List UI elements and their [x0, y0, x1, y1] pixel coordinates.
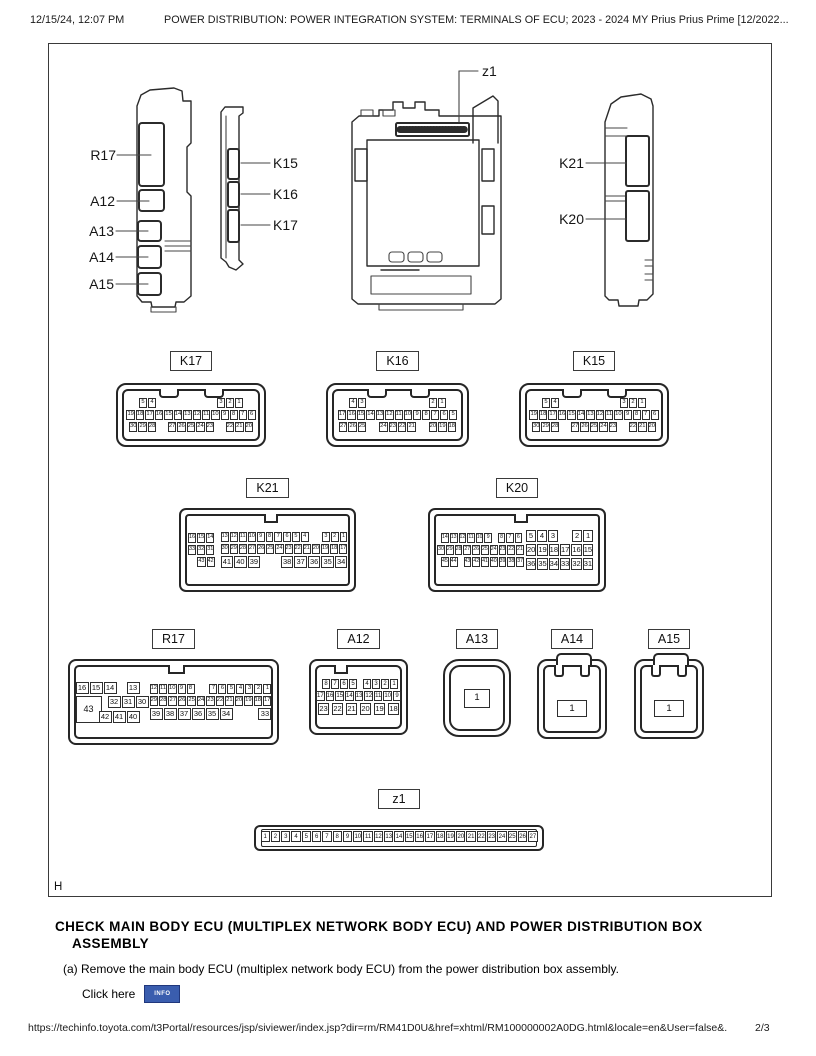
pin-K21-27: 27	[248, 544, 256, 554]
pin-K20-25: 25	[481, 545, 489, 555]
header-document-title: POWER DISTRIBUTION: POWER INTEGRATION SY…	[164, 14, 794, 26]
pin-K20-4: 4	[537, 530, 547, 542]
pin-K20-6: 6	[515, 533, 522, 543]
pin-K20-41: 41	[481, 557, 489, 567]
pin-K15-16: 16	[558, 410, 566, 420]
pin-R17-5: 5	[227, 684, 235, 694]
pin-K21-9: 9	[257, 532, 265, 542]
pin-K15-22: 22	[629, 422, 637, 432]
pin-K16-5: 5	[449, 410, 457, 420]
pin-K21-36: 36	[308, 556, 321, 568]
pin-z1-1: 1	[261, 831, 270, 842]
pin-A12-21: 21	[346, 703, 357, 715]
pin-K15-9: 9	[624, 410, 632, 420]
callout-a12: A12	[90, 193, 115, 209]
connector-shell-K20: 1413121110987630292827262524232221454443…	[428, 508, 606, 592]
connector-label-A15: A15	[648, 629, 690, 649]
pin-K16-14: 14	[366, 410, 374, 420]
pin-K15-1: 1	[638, 398, 646, 408]
pin-K20-30: 30	[437, 545, 445, 555]
pin-K15-12: 12	[596, 410, 604, 420]
pin-K16-20: 20	[429, 422, 437, 432]
pin-K21-38: 38	[281, 556, 294, 568]
pin-K21-7: 7	[274, 532, 282, 542]
pin-R17-29: 29	[150, 696, 158, 706]
pin-K21-2: 2	[331, 532, 339, 542]
pin-K16-3: 3	[358, 398, 366, 408]
pin-z1-24: 24	[497, 831, 506, 842]
pin-A12-2: 2	[381, 679, 389, 689]
pin-K16-22: 22	[398, 422, 406, 432]
click-here-label: Click here	[82, 987, 135, 1001]
section-heading-line1: CHECK MAIN BODY ECU (MULTIPLEX NETWORK B…	[55, 918, 795, 935]
pin-K17-3: 3	[217, 398, 225, 408]
pin-K21-16: 16	[188, 533, 196, 543]
ecu-right-side-view: K21 K20	[559, 94, 653, 306]
pin-K17-13: 13	[183, 410, 191, 420]
pin-K15-23: 23	[609, 422, 617, 432]
callout-k16: K16	[273, 186, 298, 202]
pin-K17-29: 29	[138, 422, 146, 432]
pin-A12-14: 14	[345, 691, 354, 701]
pin-K21-1: 1	[340, 532, 348, 542]
pin-K20-9: 9	[484, 533, 491, 543]
pin-K17-10: 10	[211, 410, 219, 420]
connector-label-z1: z1	[378, 789, 420, 809]
pin-R17-18: 18	[254, 696, 262, 706]
pin-K20-15: 15	[583, 544, 593, 556]
pin-R17-4: 4	[236, 684, 244, 694]
pin-K20-3: 3	[548, 530, 558, 542]
pin-K15-17: 17	[548, 410, 556, 420]
pin-z1-26: 26	[518, 831, 527, 842]
pin-z1-18: 18	[436, 831, 445, 842]
callout-r17: R17	[90, 147, 116, 163]
connector-shell-K16: 4321171615141312111098765272625242322212…	[326, 383, 469, 447]
pin-K15-19: 19	[529, 410, 537, 420]
connector-shell-A13: 1	[443, 659, 511, 737]
connector-label-K16: K16	[376, 351, 418, 371]
connector-shell-R17: 1615141343323130424140121110987654321292…	[68, 659, 279, 745]
pin-K20-42: 42	[472, 557, 480, 567]
connector-label-A12: A12	[337, 629, 379, 649]
pin-K15-28: 28	[551, 422, 559, 432]
pin-K17-20: 20	[245, 422, 253, 432]
pin-R17-19: 19	[244, 696, 252, 706]
callout-a14: A14	[89, 249, 114, 265]
callout-k17: K17	[273, 217, 298, 233]
pin-K15-6: 6	[651, 410, 659, 420]
pin-K20-10: 10	[476, 533, 484, 543]
callout-a13: A13	[89, 223, 114, 239]
pin-K17-14: 14	[174, 410, 182, 420]
pin-K16-9: 9	[413, 410, 421, 420]
connector-shell-K17: 5432119181716151413121110987630292827262…	[116, 383, 266, 447]
pin-A12-11: 11	[374, 691, 382, 701]
pin-K21-18: 18	[330, 544, 338, 554]
pin-A14-1: 1	[557, 700, 587, 717]
pin-R17-23: 23	[206, 696, 214, 706]
pin-K20-16: 16	[571, 544, 581, 556]
pin-K15-7: 7	[642, 410, 650, 420]
connector-label-K15: K15	[573, 351, 615, 371]
pin-K17-25: 25	[187, 422, 195, 432]
pin-K20-45: 45	[441, 557, 449, 567]
pin-K20-21: 21	[516, 545, 524, 555]
pin-z1-19: 19	[446, 831, 455, 842]
pin-K20-8: 8	[498, 533, 505, 543]
pin-K16-10: 10	[404, 410, 412, 420]
pin-K15-27: 27	[571, 422, 579, 432]
pin-K20-44: 44	[450, 557, 458, 567]
pin-z1-23: 23	[487, 831, 496, 842]
pin-K16-1: 1	[438, 398, 446, 408]
pin-K20-12: 12	[459, 533, 467, 543]
pin-K20-39: 39	[499, 557, 507, 567]
pin-z1-17: 17	[425, 831, 434, 842]
pin-A12-5: 5	[349, 679, 357, 689]
pin-z1-10: 10	[353, 831, 362, 842]
pin-K15-30: 30	[532, 422, 540, 432]
pin-K17-27: 27	[168, 422, 176, 432]
pin-A12-6: 6	[340, 679, 348, 689]
pin-A12-4: 4	[363, 679, 371, 689]
pin-K17-11: 11	[202, 410, 210, 420]
pin-K21-6: 6	[283, 532, 291, 542]
pin-K20-26: 26	[472, 545, 480, 555]
pin-R17-14: 14	[104, 682, 117, 694]
pin-R17-38: 38	[164, 708, 177, 720]
pin-K17-26: 26	[177, 422, 185, 432]
pin-R17-32: 32	[108, 696, 121, 708]
terminals-figure: R17 A12 A13 A14 A15 K15 K16 K17	[48, 43, 772, 897]
pin-A12-17: 17	[316, 691, 325, 701]
pin-A12-22: 22	[332, 703, 343, 715]
pin-K17-12: 12	[193, 410, 201, 420]
pin-K17-2: 2	[226, 398, 234, 408]
pin-R17-16: 16	[76, 682, 89, 694]
pin-K17-6: 6	[248, 410, 256, 420]
pin-K20-36: 36	[526, 558, 536, 570]
pin-K17-15: 15	[164, 410, 172, 420]
pin-A12-19: 19	[374, 703, 385, 715]
pin-K15-4: 4	[551, 398, 559, 408]
connector-shell-K21: 1615143332314342131211109876543213029282…	[179, 508, 356, 592]
pin-K20-32: 32	[571, 558, 581, 570]
pin-R17-6: 6	[218, 684, 226, 694]
pin-K16-24: 24	[379, 422, 387, 432]
pin-K15-21: 21	[638, 422, 646, 432]
pin-R17-42: 42	[99, 711, 112, 723]
pin-K21-42: 42	[207, 557, 215, 567]
pin-R17-1: 1	[263, 684, 271, 694]
pin-K21-20: 20	[312, 544, 320, 554]
pin-K17-1: 1	[235, 398, 243, 408]
pin-A12-12: 12	[364, 691, 373, 701]
pin-A12-20: 20	[360, 703, 371, 715]
click-here-row: Click here INFO	[82, 985, 180, 1003]
connector-shell-z1: 1234567891011121314151617181920212223242…	[254, 825, 544, 851]
pin-K17-22: 22	[226, 422, 234, 432]
pin-z1-20: 20	[456, 831, 465, 842]
pin-R17-7: 7	[209, 684, 217, 694]
connector-label-R17: R17	[152, 629, 195, 649]
pin-A12-23: 23	[318, 703, 329, 715]
pin-A12-15: 15	[335, 691, 344, 701]
pin-z1-16: 16	[415, 831, 424, 842]
pin-K17-24: 24	[196, 422, 204, 432]
pin-K17-28: 28	[148, 422, 156, 432]
pin-K20-29: 29	[446, 545, 454, 555]
pin-K15-18: 18	[539, 410, 547, 420]
connector-shell-A12: 8765432117161514131211109232221201918	[309, 659, 408, 735]
pin-K15-13: 13	[586, 410, 594, 420]
pin-K17-21: 21	[235, 422, 243, 432]
pin-R17-15: 15	[90, 682, 103, 694]
pin-K16-8: 8	[422, 410, 430, 420]
pin-R17-34: 34	[220, 708, 233, 720]
pin-K20-5: 5	[526, 530, 536, 542]
pin-A12-7: 7	[331, 679, 339, 689]
pin-K15-29: 29	[541, 422, 549, 432]
pin-A12-16: 16	[326, 691, 335, 701]
connector-label-K17: K17	[170, 351, 212, 371]
info-button[interactable]: INFO	[144, 985, 180, 1003]
pin-K17-30: 30	[129, 422, 137, 432]
pin-K20-18: 18	[549, 544, 559, 556]
pin-R17-22: 22	[216, 696, 224, 706]
pin-K16-27: 27	[339, 422, 347, 432]
pin-K16-2: 2	[429, 398, 437, 408]
pin-K21-8: 8	[266, 532, 274, 542]
pin-R17-12: 12	[150, 684, 158, 694]
pin-z1-4: 4	[291, 831, 300, 842]
pin-R17-21: 21	[225, 696, 233, 706]
pin-K17-16: 16	[155, 410, 163, 420]
connector-shell-A15: 1	[634, 659, 704, 739]
connector-label-K21: K21	[246, 478, 288, 498]
pin-K16-23: 23	[389, 422, 397, 432]
pin-K16-4: 4	[349, 398, 357, 408]
pin-K21-3: 3	[322, 532, 330, 542]
pin-K16-13: 13	[376, 410, 384, 420]
pin-z1-7: 7	[322, 831, 331, 842]
pin-K21-12: 12	[230, 532, 238, 542]
footer-page-number: 2/3	[755, 1022, 770, 1034]
connector-diagram-k21: K211615143332314342131211109876543213029…	[179, 478, 356, 592]
pin-z1-9: 9	[343, 831, 352, 842]
pin-K16-26: 26	[348, 422, 356, 432]
pin-K17-5: 5	[139, 398, 147, 408]
pin-R17-20: 20	[235, 696, 243, 706]
pin-A12-8: 8	[322, 679, 330, 689]
connector-label-A14: A14	[551, 629, 593, 649]
pin-K20-38: 38	[507, 557, 515, 567]
pin-R17-36: 36	[192, 708, 205, 720]
pin-R17-39: 39	[150, 708, 163, 720]
callout-z1: z1	[482, 63, 497, 79]
pin-A15-1: 1	[654, 700, 684, 717]
pin-R17-31: 31	[122, 696, 135, 708]
pin-K15-2: 2	[629, 398, 637, 408]
pin-z1-11: 11	[363, 831, 372, 842]
ecu-left-side-view: R17 A12 A13 A14 A15	[89, 88, 191, 312]
pin-K20-1: 1	[583, 530, 593, 542]
pin-K21-35: 35	[321, 556, 334, 568]
step-a-text: (a) Remove the main body ECU (multiplex …	[63, 962, 783, 976]
callout-a15: A15	[89, 276, 114, 292]
pin-K20-22: 22	[507, 545, 515, 555]
pin-K15-26: 26	[580, 422, 588, 432]
pin-A12-18: 18	[388, 703, 399, 715]
pin-K20-28: 28	[455, 545, 463, 555]
pin-R17-37: 37	[178, 708, 191, 720]
pin-K21-11: 11	[239, 532, 247, 542]
pin-K16-16: 16	[347, 410, 355, 420]
pin-K20-11: 11	[467, 533, 474, 543]
pin-A12-10: 10	[383, 691, 392, 701]
pin-z1-13: 13	[384, 831, 393, 842]
pin-R17-13: 13	[127, 682, 140, 694]
pin-K20-23: 23	[499, 545, 507, 555]
pin-K20-14: 14	[441, 533, 449, 543]
pin-K21-33: 33	[188, 545, 196, 555]
pin-K21-41: 41	[221, 556, 234, 568]
pin-K21-22: 22	[294, 544, 302, 554]
pin-A12-3: 3	[372, 679, 380, 689]
pin-A12-13: 13	[355, 691, 364, 701]
pin-K16-17: 17	[338, 410, 346, 420]
pin-z1-2: 2	[271, 831, 280, 842]
pin-K21-24: 24	[275, 544, 283, 554]
connector-label-K20: K20	[496, 478, 538, 498]
pin-K21-13: 13	[221, 532, 229, 542]
pin-K16-25: 25	[358, 422, 366, 432]
pin-z1-27: 27	[528, 831, 537, 842]
pin-K16-15: 15	[357, 410, 365, 420]
connector-diagram-k20: K201413121110987630292827262524232221454…	[428, 478, 606, 592]
pin-K20-7: 7	[506, 533, 513, 543]
pin-z1-22: 22	[477, 831, 486, 842]
connector-shell-K15: 5432119181716151413121110987630292827262…	[519, 383, 669, 447]
connector-diagram-k15: K155432119181716151413121110987630292827…	[519, 351, 669, 447]
pin-K16-21: 21	[407, 422, 415, 432]
pin-K21-28: 28	[239, 544, 247, 554]
pin-K20-27: 27	[463, 545, 471, 555]
pin-z1-25: 25	[508, 831, 517, 842]
section-heading: CHECK MAIN BODY ECU (MULTIPLEX NETWORK B…	[55, 918, 795, 953]
ecu-views-drawing: R17 A12 A13 A14 A15 K15 K16 K17	[49, 44, 771, 344]
pin-z1-3: 3	[281, 831, 290, 842]
pin-K20-33: 33	[560, 558, 570, 570]
pin-R17-10: 10	[168, 684, 176, 694]
pin-K15-10: 10	[614, 410, 622, 420]
pin-R17-8: 8	[187, 684, 195, 694]
pin-K21-37: 37	[294, 556, 307, 568]
pin-K15-14: 14	[577, 410, 585, 420]
pin-K20-40: 40	[490, 557, 498, 567]
pin-K21-4: 4	[301, 532, 309, 542]
ecu-front-view: z1	[352, 63, 501, 310]
section-heading-line2: ASSEMBLY	[55, 935, 795, 952]
pin-K20-13: 13	[450, 533, 458, 543]
connector-diagram-r17: R171615141343323130424140121110987654321…	[68, 629, 279, 745]
pin-R17-27: 27	[168, 696, 176, 706]
pin-K17-19: 19	[126, 410, 134, 420]
pin-K21-14: 14	[206, 533, 214, 543]
pin-K20-19: 19	[537, 544, 547, 556]
pin-R17-30: 30	[136, 696, 149, 708]
pin-K17-17: 17	[145, 410, 153, 420]
pin-R17-26: 26	[178, 696, 186, 706]
pin-K21-31: 31	[206, 545, 214, 555]
pin-K21-29: 29	[230, 544, 238, 554]
pin-K20-2: 2	[572, 530, 582, 542]
pin-R17-17: 17	[263, 696, 271, 706]
pin-K20-43: 43	[464, 557, 472, 567]
pin-z1-5: 5	[302, 831, 311, 842]
pin-K17-7: 7	[239, 410, 247, 420]
pin-R17-11: 11	[159, 684, 167, 694]
pin-K15-25: 25	[590, 422, 598, 432]
pin-R17-2: 2	[254, 684, 262, 694]
pin-z1-12: 12	[374, 831, 383, 842]
pin-R17-9: 9	[178, 684, 186, 694]
connector-diagram-a14: A141	[537, 629, 607, 739]
pin-R17-25: 25	[187, 696, 195, 706]
pin-A12-9: 9	[393, 691, 401, 701]
pin-z1-14: 14	[394, 831, 403, 842]
pin-K20-20: 20	[526, 544, 536, 556]
pin-K21-10: 10	[248, 532, 256, 542]
pin-R17-41: 41	[113, 711, 126, 723]
pin-K17-8: 8	[230, 410, 238, 420]
pin-K15-3: 3	[620, 398, 628, 408]
pin-K21-23: 23	[285, 544, 293, 554]
callout-k15: K15	[273, 155, 298, 171]
pin-K20-17: 17	[560, 544, 570, 556]
connector-label-A13: A13	[456, 629, 498, 649]
pin-K21-25: 25	[266, 544, 274, 554]
pin-K17-9: 9	[221, 410, 229, 420]
pin-K21-19: 19	[321, 544, 329, 554]
pin-z1-15: 15	[405, 831, 414, 842]
pin-K21-43: 43	[197, 557, 205, 567]
pin-K21-17: 17	[339, 544, 347, 554]
pin-R17-33: 33	[258, 708, 271, 720]
pin-A13-1: 1	[464, 689, 490, 708]
connector-diagram-k16: K164321171615141312111098765272625242322…	[326, 351, 469, 447]
pin-K21-30: 30	[221, 544, 229, 554]
pin-K16-12: 12	[385, 410, 393, 420]
connector-shell-A14: 1	[537, 659, 607, 739]
pin-z1-8: 8	[333, 831, 342, 842]
pin-R17-28: 28	[159, 696, 167, 706]
pin-z1-21: 21	[466, 831, 475, 842]
pin-A12-1: 1	[390, 679, 398, 689]
pin-K15-15: 15	[567, 410, 575, 420]
pin-R17-40: 40	[127, 711, 140, 723]
pin-K17-4: 4	[148, 398, 156, 408]
pin-K15-20: 20	[648, 422, 656, 432]
pin-K21-40: 40	[234, 556, 247, 568]
pin-K21-26: 26	[257, 544, 265, 554]
pin-K16-19: 19	[438, 422, 446, 432]
pin-K17-18: 18	[136, 410, 144, 420]
header-datetime: 12/15/24, 12:07 PM	[30, 14, 124, 26]
pin-z1-6: 6	[312, 831, 321, 842]
ecu-mid-side-view: K15 K16 K17	[221, 107, 298, 270]
